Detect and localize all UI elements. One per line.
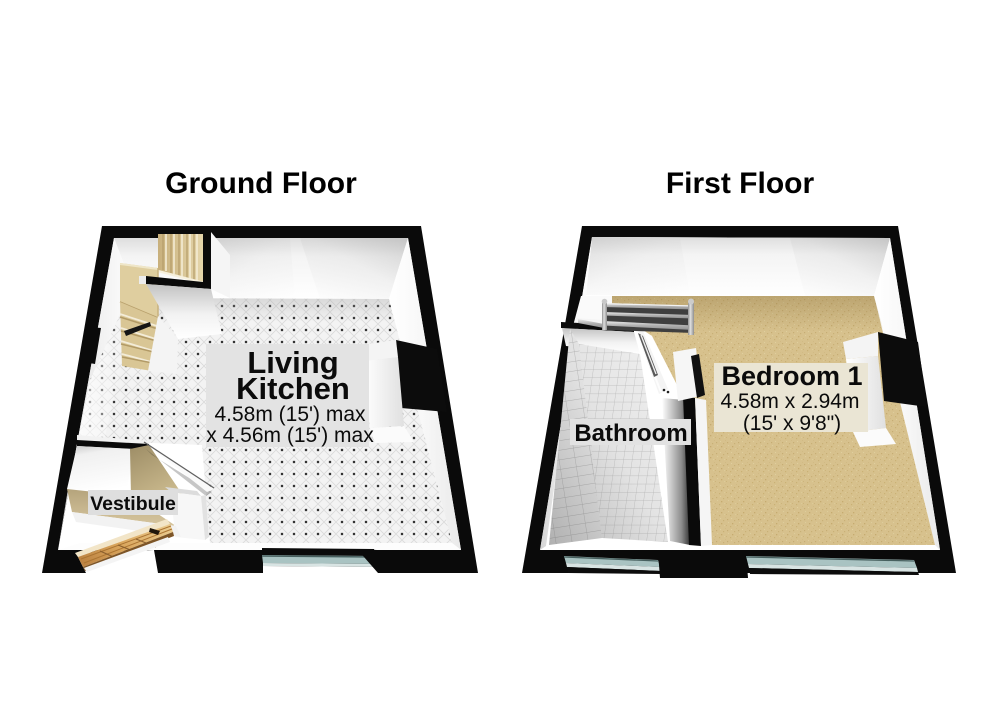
svg-text:Ground Floor: Ground Floor	[165, 167, 357, 200]
svg-text:4.58m x 2.94m: 4.58m x 2.94m	[721, 390, 860, 413]
svg-text:x 4.56m (15') max: x 4.56m (15') max	[206, 424, 374, 447]
svg-text:Bedroom 1: Bedroom 1	[721, 361, 862, 391]
svg-text:First Floor: First Floor	[666, 167, 815, 200]
svg-text:Vestibule: Vestibule	[90, 493, 176, 515]
svg-text:(15' x 9'8"): (15' x 9'8")	[743, 412, 841, 435]
svg-text:Kitchen: Kitchen	[236, 371, 350, 406]
svg-text:4.58m (15') max: 4.58m (15') max	[214, 403, 366, 426]
svg-text:Bathroom: Bathroom	[574, 420, 687, 447]
